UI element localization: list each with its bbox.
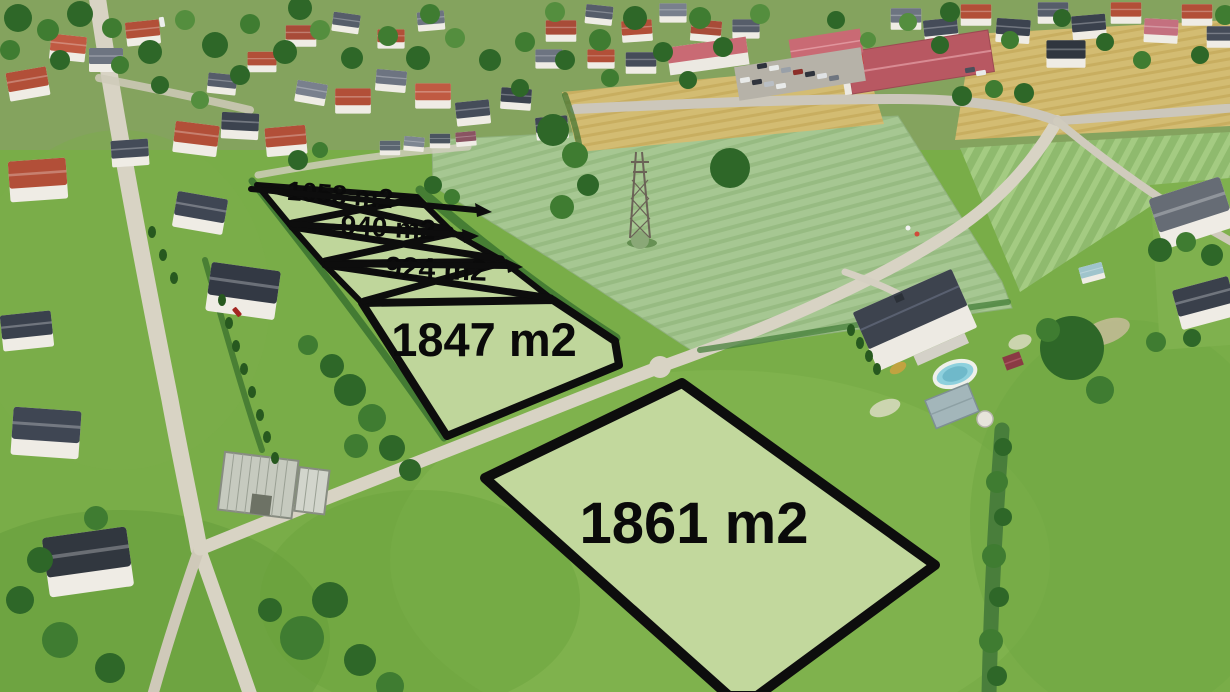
house	[110, 139, 149, 168]
house	[659, 3, 686, 22]
plot-1847-label: 1847 m2	[391, 313, 577, 366]
house	[546, 20, 577, 42]
water-tank	[977, 411, 993, 427]
house	[221, 112, 260, 140]
house	[8, 158, 69, 203]
house	[961, 4, 992, 26]
aerial-photo-canvas: 1058 m2 940 m2 924 m2 1847 m2 1861 m2	[0, 0, 1230, 692]
house	[626, 52, 657, 74]
house	[205, 262, 281, 320]
road-junction	[649, 356, 671, 378]
house	[172, 121, 220, 157]
garden-shed	[403, 136, 425, 152]
garden-shed	[430, 134, 450, 148]
house	[10, 407, 81, 460]
house	[42, 526, 135, 597]
aerial-photo: 1058 m2 940 m2 924 m2 1847 m2 1861 m2	[0, 0, 1230, 692]
house	[1182, 4, 1213, 26]
house	[248, 52, 277, 72]
house	[331, 12, 361, 35]
strike-line-924	[327, 264, 508, 266]
pedestrian	[906, 226, 911, 231]
cyclist	[915, 232, 920, 237]
house	[335, 88, 371, 113]
house	[415, 83, 451, 108]
house	[584, 4, 613, 26]
house	[0, 310, 54, 351]
plot-924-label: 924 m2	[385, 251, 488, 288]
house	[1046, 40, 1085, 68]
house	[1143, 18, 1178, 44]
house	[1207, 26, 1230, 48]
plot-1861-label: 1861 m2	[580, 491, 809, 556]
house	[1111, 2, 1142, 24]
house	[375, 69, 407, 93]
garden-shed	[380, 141, 400, 155]
house	[587, 49, 614, 68]
garden-shed	[455, 131, 477, 147]
house	[455, 99, 491, 126]
